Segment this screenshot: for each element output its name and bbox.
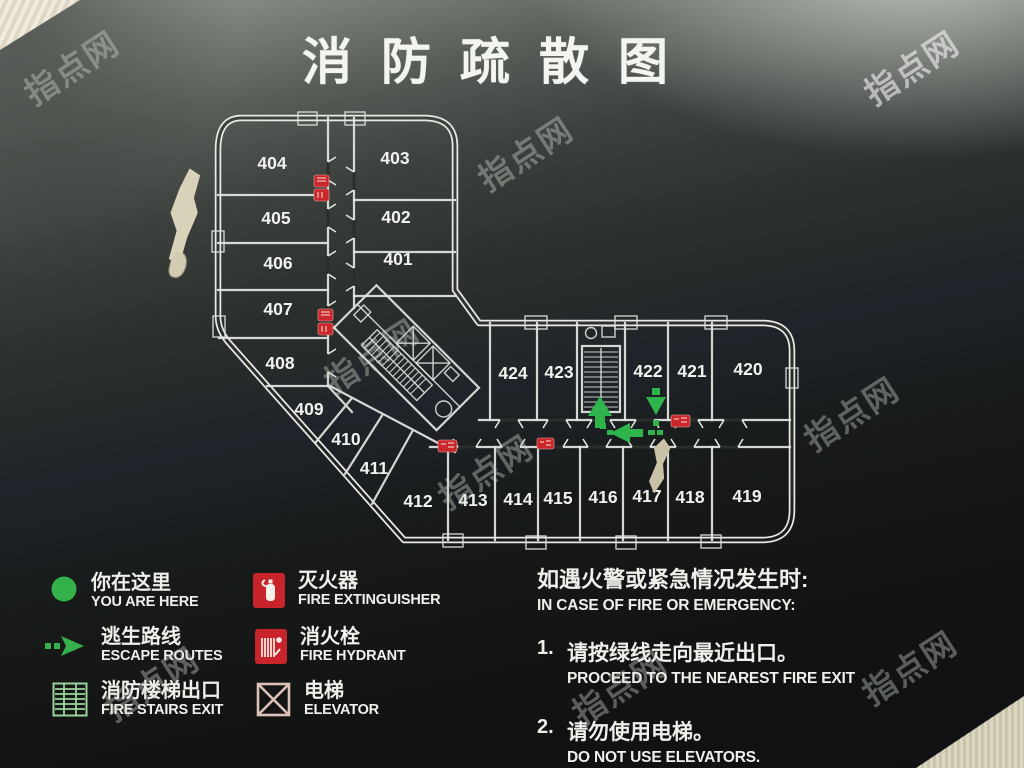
step-en: DO NOT USE ELEVATORS. xyxy=(567,749,760,767)
step-zh: 请按绿线走向最近出口。 xyxy=(567,637,855,667)
room-label: 408 xyxy=(265,353,294,373)
floor-plan: 404 403 405 402 406 401 407 408 409 410 … xyxy=(195,95,820,565)
emergency-instructions: 如遇火警或紧急情况发生时: IN CASE OF FIRE OR EMERGEN… xyxy=(537,562,855,767)
legend-escape-routes: 逃生路线 ESCAPE ROUTES xyxy=(44,626,222,665)
room-label: 421 xyxy=(677,361,706,381)
fire-hydrant-icon xyxy=(438,440,457,452)
room-label: 401 xyxy=(383,249,412,269)
fire-hydrant-icon xyxy=(255,629,287,664)
room-label: 419 xyxy=(732,486,761,506)
core-block xyxy=(334,285,479,430)
legend-zh: 灭火器 xyxy=(298,570,440,592)
escape-route-arrow-icon xyxy=(44,634,88,658)
room-label: 413 xyxy=(458,490,487,510)
room-label: 403 xyxy=(380,148,409,168)
wall-windows xyxy=(212,112,798,549)
room-label: 402 xyxy=(381,207,410,227)
watermark: 指点网 xyxy=(13,17,127,114)
legend-en: ESCAPE ROUTES xyxy=(101,648,222,665)
instructions-heading-zh: 如遇火警或紧急情况发生时: xyxy=(537,562,855,594)
watermark: 指点网 xyxy=(851,617,965,714)
room-label: 412 xyxy=(403,491,432,511)
fire-hydrant-icon xyxy=(537,438,554,449)
room-label: 407 xyxy=(263,299,292,319)
legend-en: ELEVATOR xyxy=(304,702,379,719)
room-label: 420 xyxy=(733,359,762,379)
fire-hydrant-icon xyxy=(671,415,690,427)
sign-board: 消防疏散图 xyxy=(0,0,1024,768)
step-en: PROCEED TO THE NEAREST FIRE EXIT xyxy=(567,670,855,688)
room-label: 415 xyxy=(543,488,572,508)
page-title: 消防疏散图 xyxy=(302,22,697,94)
fire-hydrant-icon xyxy=(314,175,329,187)
room-label: 405 xyxy=(261,208,290,228)
legend-fire-extinguisher: 灭火器 FIRE EXTINGUISHER xyxy=(253,570,440,609)
legend-zh: 你在这里 xyxy=(91,572,198,594)
legend-you-are-here: 你在这里 YOU ARE HERE xyxy=(50,572,198,611)
elevator-crossed-icon xyxy=(256,682,291,717)
watermark: 指点网 xyxy=(853,17,967,114)
fire-extinguisher-icon xyxy=(314,189,329,201)
legend-zh: 消火栓 xyxy=(300,626,406,648)
room-label: 423 xyxy=(544,362,573,382)
step-number: 1. xyxy=(537,637,557,688)
room-label: 414 xyxy=(503,489,532,509)
instruction-step: 1. 请按绿线走向最近出口。 PROCEED TO THE NEAREST FI… xyxy=(537,637,855,688)
fire-stairs-icon xyxy=(52,682,88,718)
room-label: 422 xyxy=(633,361,662,381)
legend-fire-hydrant: 消火栓 FIRE HYDRANT xyxy=(255,626,406,665)
instructions-heading-en: IN CASE OF FIRE OR EMERGENCY: xyxy=(537,597,855,615)
legend-en: FIRE HYDRANT xyxy=(300,648,406,665)
legend-fire-stairs-exit: 消防楼梯出口 FIRE STAIRS EXIT xyxy=(52,680,223,719)
legend-zh: 逃生路线 xyxy=(101,626,222,648)
core-fixture xyxy=(354,305,371,322)
legend-zh: 电梯 xyxy=(304,680,379,702)
escape-route-arrows xyxy=(588,388,666,443)
room-label: 417 xyxy=(632,486,661,506)
step-zh: 请勿使用电梯。 xyxy=(567,716,760,746)
route-arrow-down xyxy=(646,397,666,415)
interior-walls xyxy=(218,118,790,540)
room-label: 409 xyxy=(294,399,323,419)
step-number: 2. xyxy=(537,716,557,767)
legend-zh: 消防楼梯出口 xyxy=(101,680,223,702)
room-label: 424 xyxy=(498,363,527,383)
legend-elevator: 电梯 ELEVATOR xyxy=(256,680,379,719)
room-label: 411 xyxy=(360,458,388,478)
legend-en: FIRE EXTINGUISHER xyxy=(298,592,440,609)
fire-extinguisher-icon xyxy=(253,573,285,608)
core-fixture xyxy=(432,398,455,421)
room-label: 418 xyxy=(675,487,704,507)
room-label: 416 xyxy=(588,487,617,507)
you-are-here-dot-icon xyxy=(50,575,78,603)
fire-extinguisher-icon xyxy=(318,323,333,335)
route-arrow-left xyxy=(610,423,643,443)
legend-en: YOU ARE HERE xyxy=(91,594,198,611)
fire-hydrant-icon xyxy=(318,309,333,321)
core-fixture xyxy=(444,367,459,382)
room-label: 404 xyxy=(257,153,286,173)
paint-scratch xyxy=(167,250,189,279)
room-label: 410 xyxy=(331,429,360,449)
instruction-step: 2. 请勿使用电梯。 DO NOT USE ELEVATORS. xyxy=(537,716,855,767)
room-label: 406 xyxy=(263,253,292,273)
legend-en: FIRE STAIRS EXIT xyxy=(101,702,223,719)
